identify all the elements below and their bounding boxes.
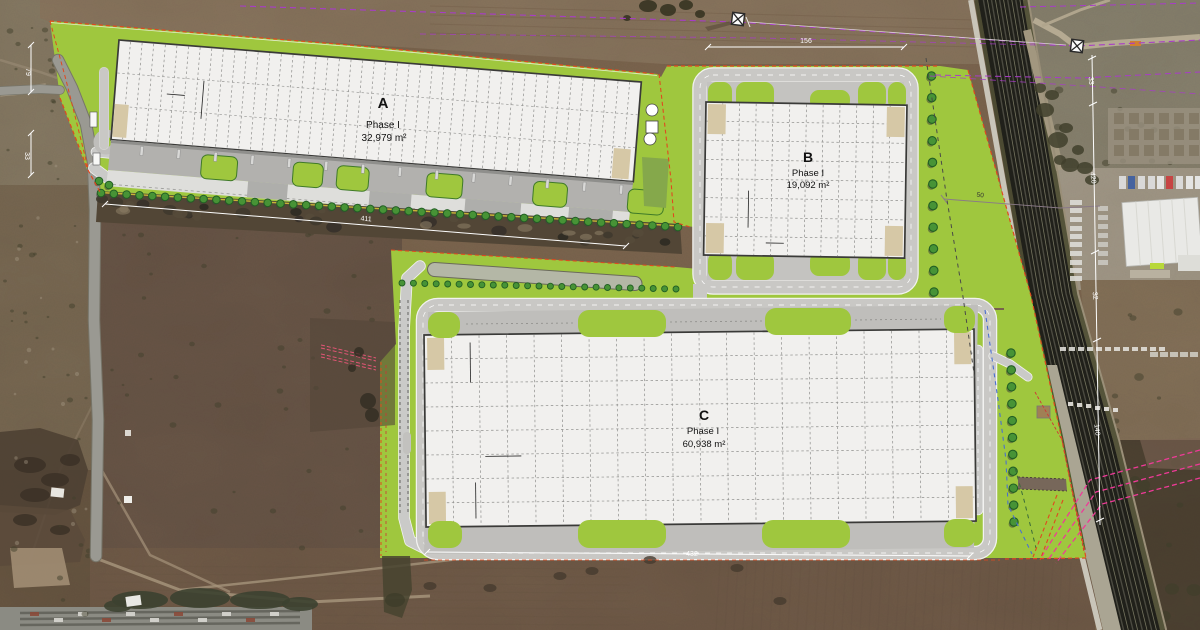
- svg-text:420: 420: [1088, 172, 1096, 184]
- svg-text:Phase I: Phase I: [366, 120, 400, 131]
- svg-text:50: 50: [976, 192, 985, 200]
- svg-text:A: A: [378, 95, 389, 112]
- svg-text:432: 432: [686, 551, 698, 558]
- svg-text:B: B: [803, 149, 813, 165]
- svg-text:32,979 m²: 32,979 m²: [361, 133, 407, 144]
- svg-text:411: 411: [360, 216, 372, 224]
- svg-text:33: 33: [23, 152, 30, 160]
- svg-text:33: 33: [1087, 77, 1095, 86]
- svg-text:79: 79: [24, 68, 31, 76]
- svg-text:32: 32: [1091, 292, 1099, 301]
- svg-text:19,092 m²: 19,092 m²: [787, 180, 830, 191]
- svg-text:140: 140: [1092, 424, 1100, 436]
- svg-text:60,938 m²: 60,938 m²: [683, 439, 726, 450]
- svg-text:Phase I: Phase I: [792, 168, 824, 179]
- svg-text:Phase I: Phase I: [687, 426, 719, 437]
- svg-text:C: C: [699, 407, 709, 423]
- svg-text:156: 156: [800, 38, 812, 45]
